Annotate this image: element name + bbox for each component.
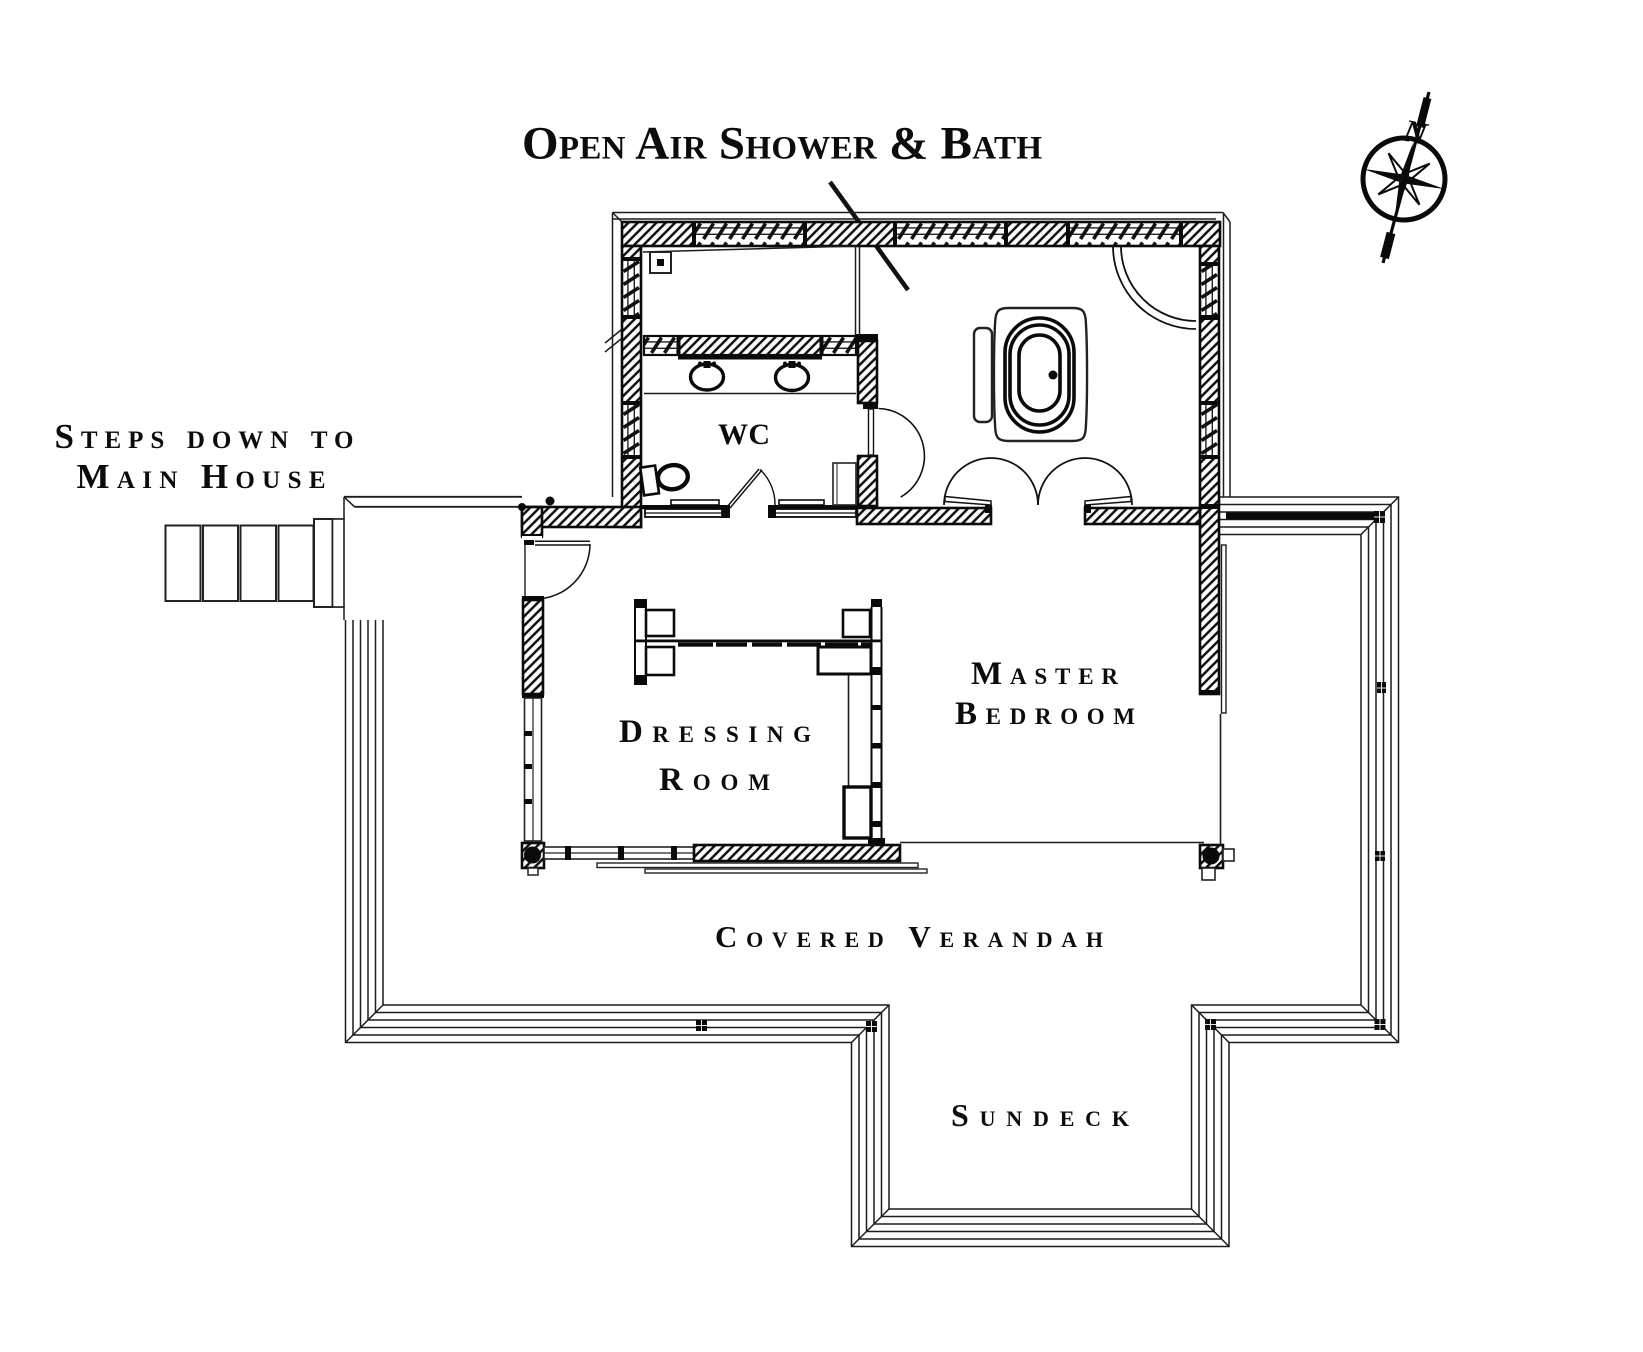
svg-text:Covered Verandah: Covered Verandah: [715, 919, 1103, 954]
svg-text:Open Air Shower & Bath: Open Air Shower & Bath: [522, 118, 1042, 170]
svg-text:WC: WC: [718, 418, 770, 451]
